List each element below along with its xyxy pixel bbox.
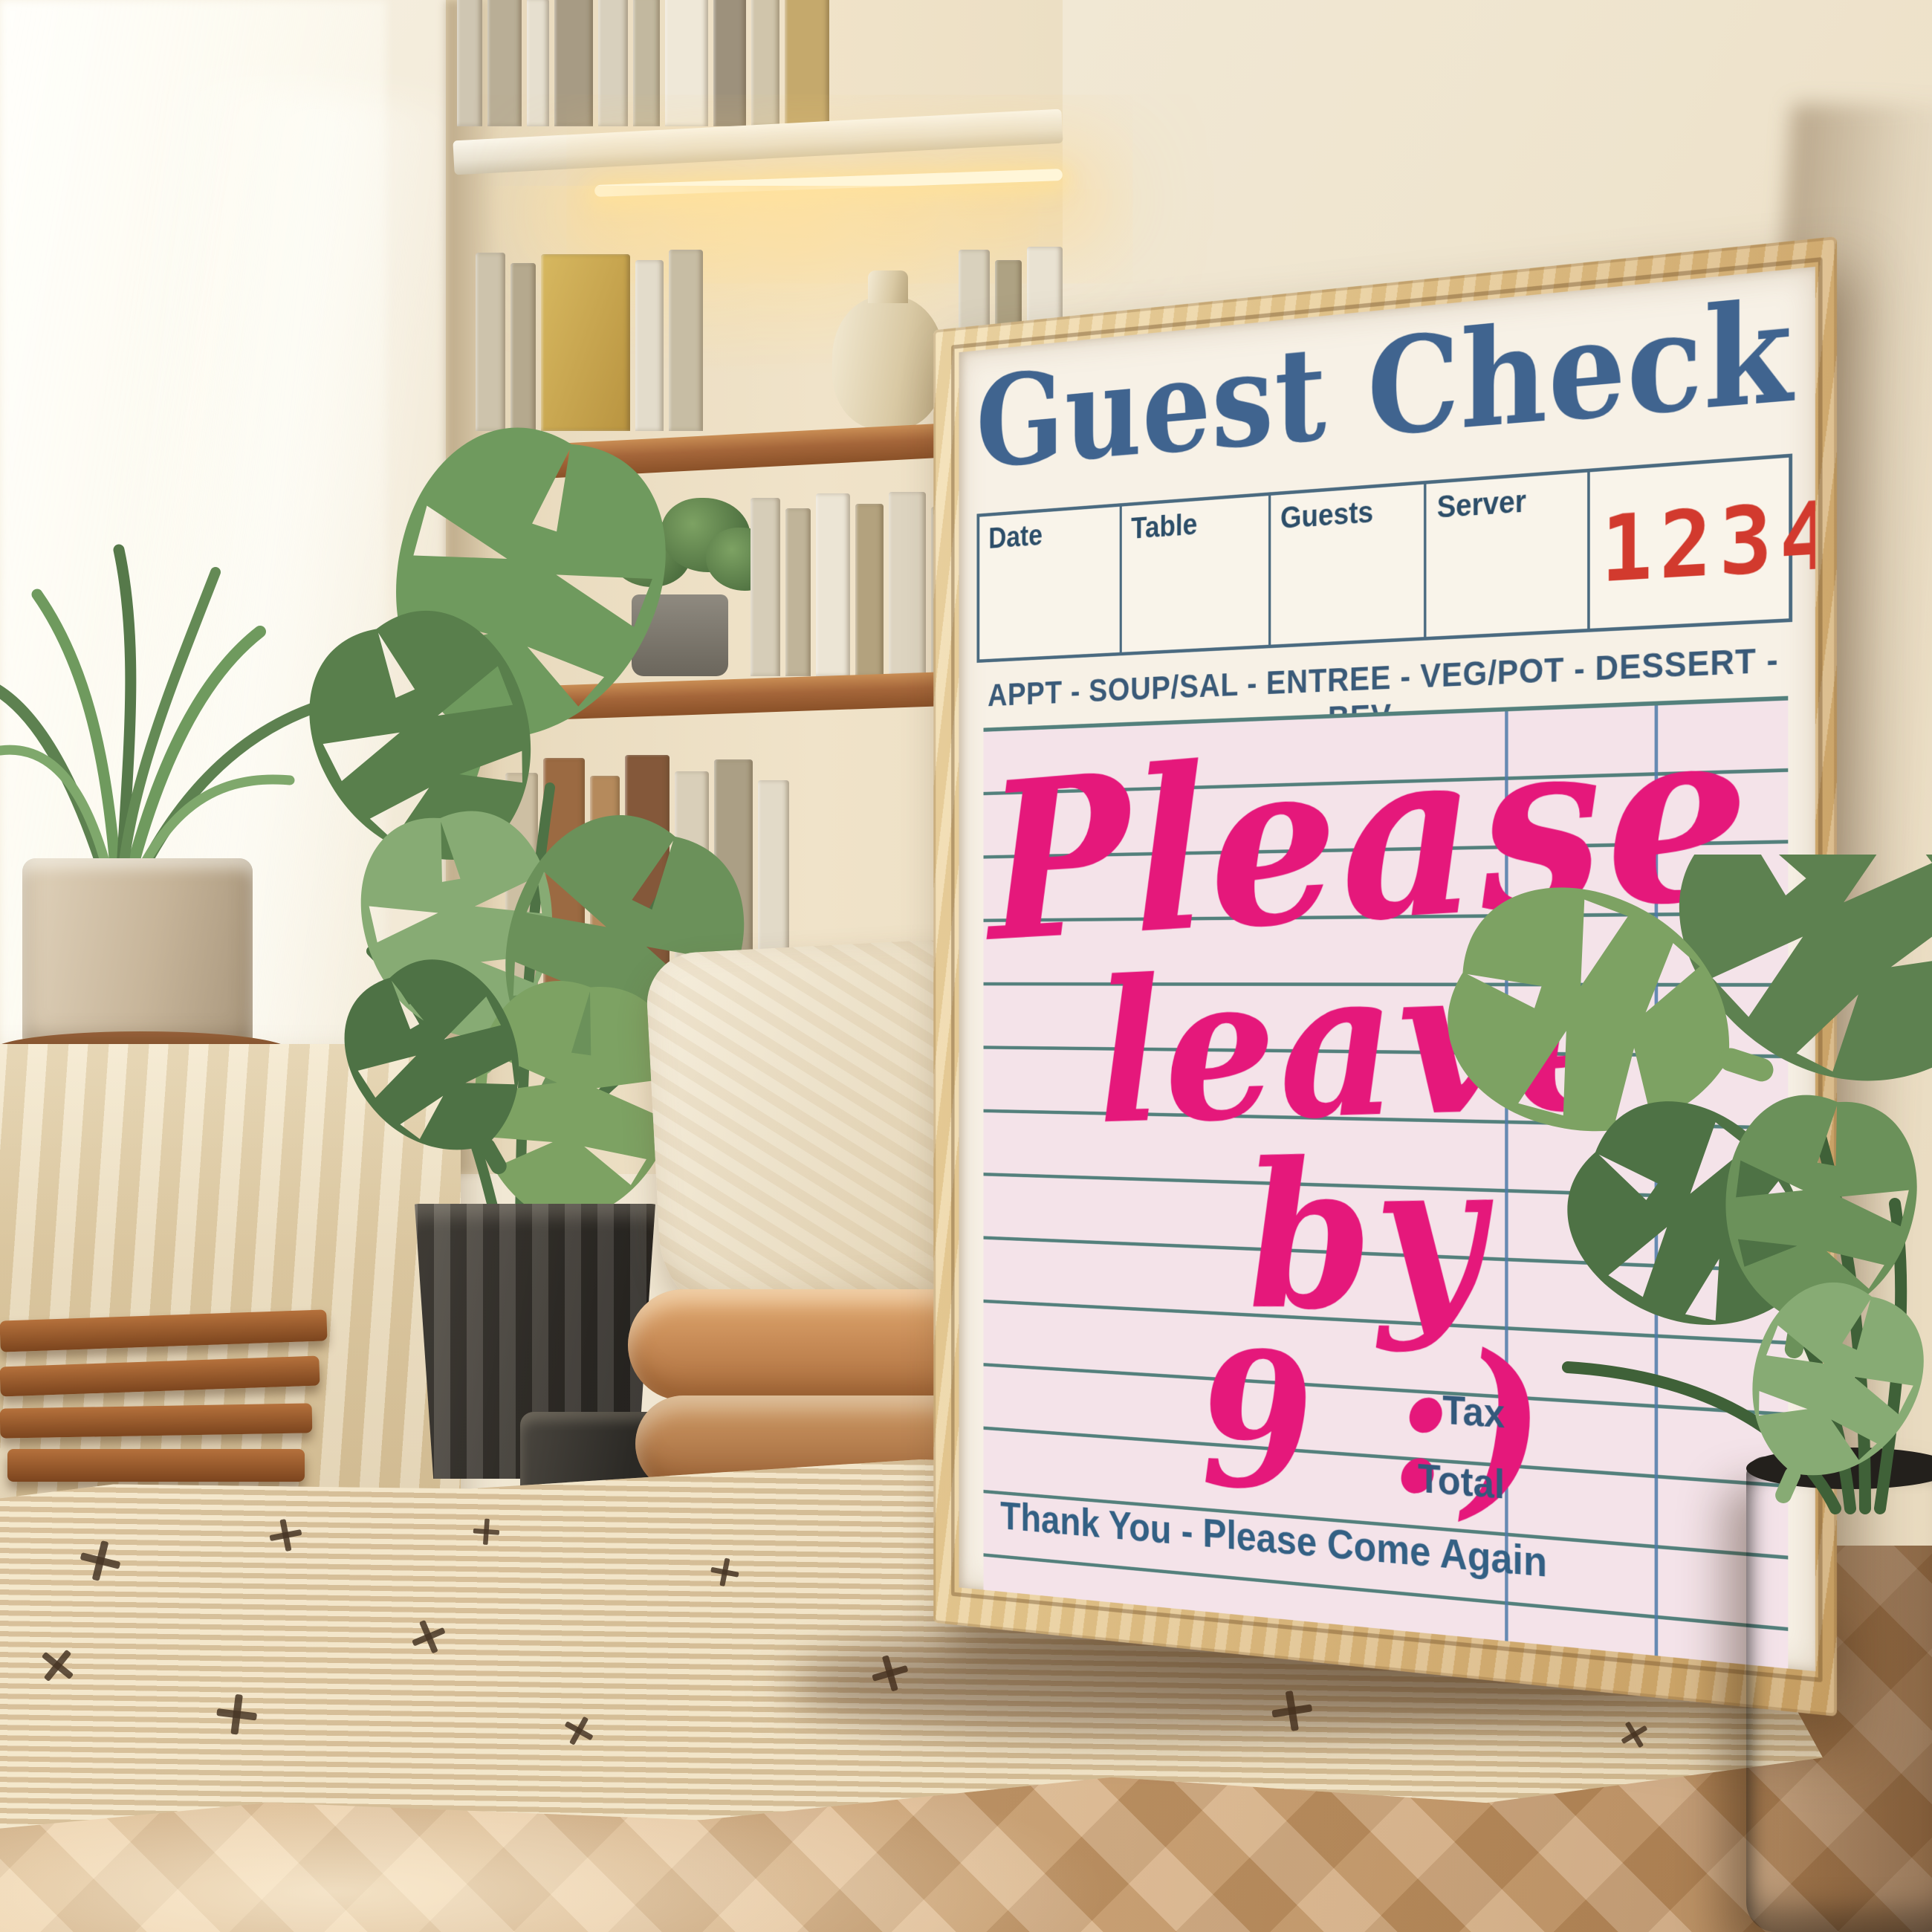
book-spine <box>751 0 779 126</box>
rug-motif <box>559 1711 600 1751</box>
header-cell-date: Date <box>979 507 1121 660</box>
book-spine <box>665 0 708 126</box>
book-spine <box>487 0 522 126</box>
rug-motif <box>406 1615 451 1659</box>
book-spine <box>633 0 660 126</box>
book-spine <box>598 0 628 126</box>
rug-motif <box>215 1692 259 1737</box>
book-spine <box>785 0 829 126</box>
header-cell-guests: Guests <box>1271 484 1427 645</box>
rug-motif <box>76 1537 124 1585</box>
rug-motif <box>473 1518 500 1546</box>
book-spine <box>457 0 482 126</box>
rug-motif <box>267 1517 305 1555</box>
header-cell-server: Server <box>1427 472 1590 637</box>
wood-slat-bench <box>7 1449 305 1482</box>
monstera-plant-right <box>1375 855 1932 1568</box>
header-cell-table: Table <box>1122 496 1271 652</box>
book-spine <box>713 0 746 126</box>
reading-nook-photo: Guest Check Date Table Guests Server 123… <box>0 0 1932 1932</box>
book-row <box>457 0 1051 126</box>
rug-motif <box>1615 1715 1653 1754</box>
book-spine <box>889 492 926 676</box>
wood-slat-bench <box>0 1403 312 1438</box>
book-spine <box>554 0 593 126</box>
rug-motif <box>708 1556 741 1589</box>
book-spine <box>527 0 549 126</box>
check-number: 123456 <box>1590 444 1815 629</box>
rug-motif <box>32 1640 82 1690</box>
